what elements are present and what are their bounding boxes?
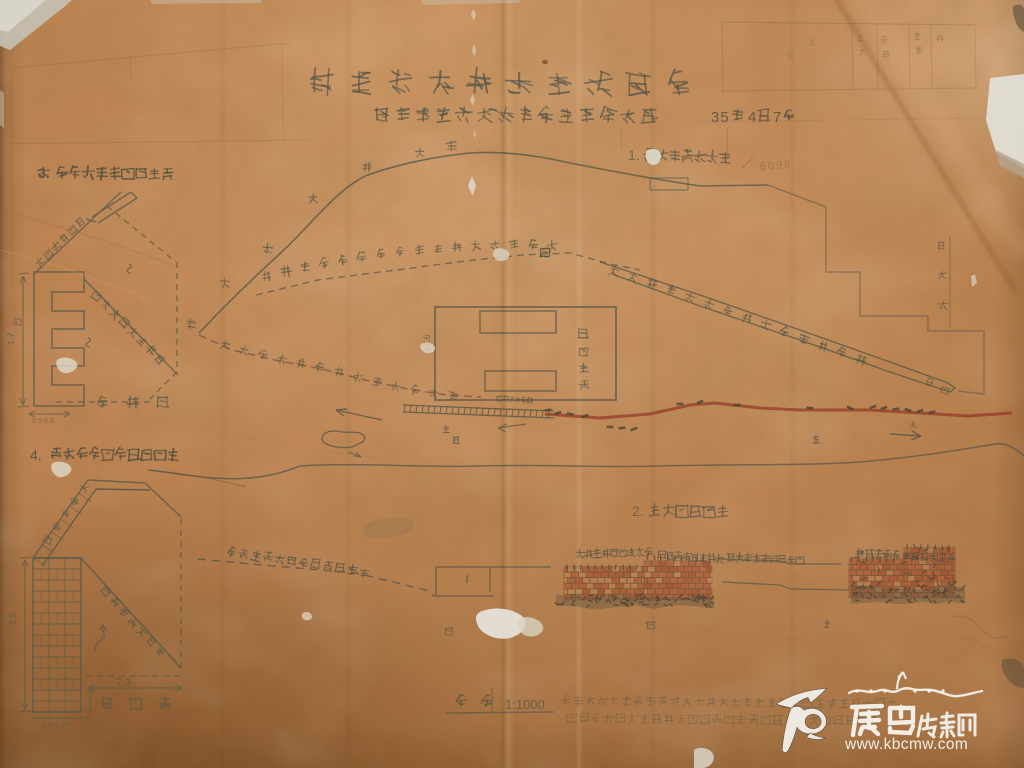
svg-text:www.kbcmw.com: www.kbcmw.com [844,736,968,753]
